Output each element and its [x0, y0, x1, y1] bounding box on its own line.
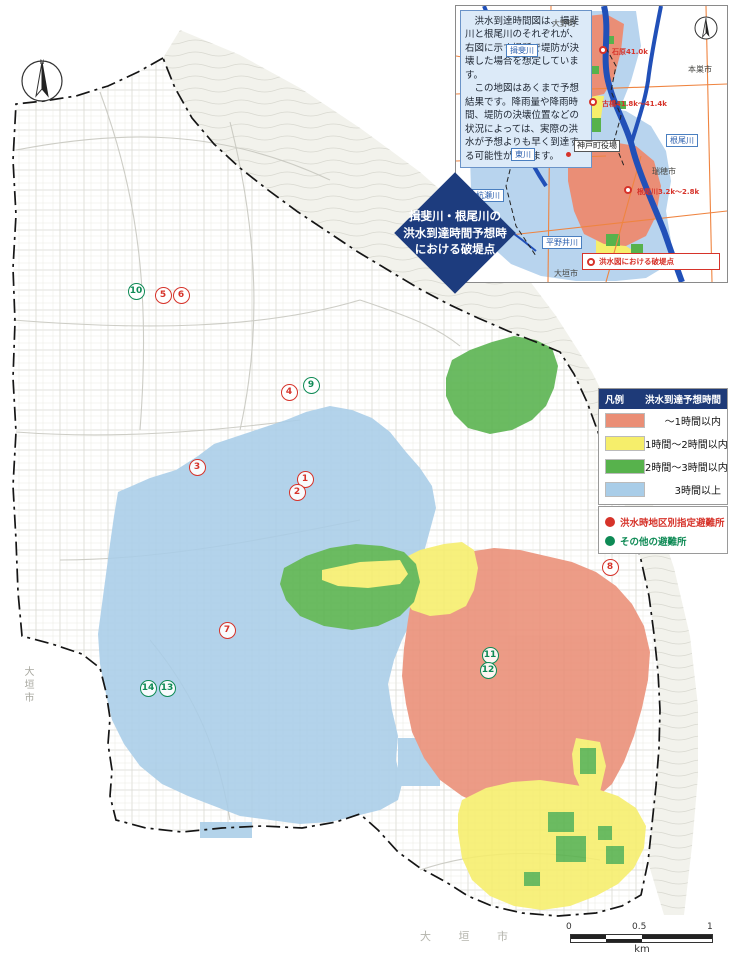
- shelter-legend-row-1: その他の避難所: [605, 531, 721, 550]
- city-label-ogaki-left: 大垣市: [20, 666, 35, 705]
- inset-label-river: 東川: [511, 148, 535, 161]
- inset-compass-icon: [695, 17, 717, 39]
- inset-label-office: 神戸町役場: [574, 140, 620, 152]
- shelter-marker-4: 4: [281, 384, 298, 401]
- breach-point-callout: 揖斐川・根尾川の 洪水到達時間予想時 における破堤点: [394, 174, 516, 292]
- shelter-legend-row-0: 洪水時地区別指定避難所: [605, 512, 721, 531]
- inset-label-plain: 大野町: [552, 18, 576, 29]
- shelter-dot-icon: [605, 517, 615, 527]
- svg-text:N: N: [40, 59, 45, 66]
- shelter-marker-11: 11: [482, 647, 499, 664]
- legend-label: 1時間～2時間以内: [645, 436, 728, 451]
- breach-point-marker-0: [599, 46, 607, 54]
- flood-zone-3h-patch: [580, 748, 596, 774]
- scale-bar-graphic: [570, 934, 713, 943]
- breach-point-marker-2: [624, 186, 632, 194]
- shelter-legend-label: 洪水時地区別指定避難所: [620, 515, 725, 529]
- legend-row-2: 2時間～3時間以内: [599, 455, 727, 478]
- legend-swatch: [605, 482, 645, 497]
- shelter-dot-icon: [605, 536, 615, 546]
- scale-tick-05: 0.5: [632, 922, 646, 932]
- legend-title: 凡例: [605, 392, 624, 406]
- compass-icon: N: [22, 59, 62, 101]
- callout-line3: における破堤点: [415, 241, 496, 258]
- shelter-marker-7: 7: [219, 622, 236, 639]
- breach-point-marker-1: [589, 98, 597, 106]
- legend-swatch: [605, 413, 645, 428]
- legend-row-0: ～1時間以内: [599, 409, 727, 432]
- flood-zone-3h-patch: [524, 872, 540, 886]
- breach-point-icon: [587, 258, 595, 266]
- breach-point-label-2: 根尾川3.2k〜2.8k: [637, 187, 699, 197]
- breach-point-label-0: 石原41.0k: [612, 47, 648, 57]
- shelter-marker-2: 2: [289, 484, 306, 501]
- inset-label-plain: 瑞穂市: [652, 166, 676, 177]
- legend-label: ～1時間以内: [645, 413, 721, 428]
- callout-line2: 洪水到達時間予想時: [403, 225, 507, 242]
- shelter-marker-8: 8: [602, 559, 619, 576]
- inset-label-river: 平野井川: [542, 236, 582, 249]
- flood-zone-3h-patch: [606, 846, 624, 864]
- city-label-ogaki-bottom: 大 垣 市: [420, 928, 520, 944]
- legend-row-1: 1時間～2時間以内: [599, 432, 727, 455]
- scale-unit: km: [566, 944, 718, 955]
- inset-note: 洪水到達時間図は、揖斐川と根尾川のそれぞれが、右図に示す場所で堤防が決壊した場合…: [460, 10, 592, 168]
- inset-label-plain: 本巣市: [688, 64, 712, 75]
- legend-label: 2時間～3時間以内: [645, 459, 728, 474]
- flood-zone-3h-patch: [548, 812, 574, 832]
- breach-point-label-1: 古橋41.8k〜41.4k: [602, 99, 667, 109]
- scale-tick-0: 0: [566, 922, 572, 932]
- inset-breach-legend-label: 洪水図における破堤点: [599, 256, 674, 267]
- shelter-marker-13: 13: [159, 680, 176, 697]
- inset-label-river: 揖斐川: [506, 44, 538, 57]
- shelter-marker-14: 14: [140, 680, 157, 697]
- inset-label-plain: 大垣市: [554, 268, 578, 279]
- flood-zone-3h-patch: [556, 836, 586, 862]
- scale-bar: 0 0.5 1 km: [566, 922, 718, 955]
- legend-swatch: [605, 459, 645, 474]
- inset-label-river: 根尾川: [666, 134, 698, 147]
- shelter-marker-5: 5: [155, 287, 172, 304]
- shelter-marker-10: 10: [128, 283, 145, 300]
- flood-zone-over3h-patch: [200, 822, 252, 838]
- legend: 凡例 洪水到達予想時間 ～1時間以内1時間～2時間以内2時間～3時間以内3時間以…: [598, 388, 728, 505]
- flood-zone-3h-patch: [598, 826, 612, 840]
- legend-row-3: 3時間以上: [599, 478, 727, 501]
- inset-breach-legend: 洪水図における破堤点: [582, 253, 720, 270]
- shelter-marker-6: 6: [173, 287, 190, 304]
- town-office-dot: [566, 152, 571, 157]
- legend-subtitle: 洪水到達予想時間: [645, 392, 721, 406]
- shelter-marker-12: 12: [480, 662, 497, 679]
- shelter-legend: 洪水時地区別指定避難所その他の避難所: [598, 506, 728, 554]
- shelter-marker-9: 9: [303, 377, 320, 394]
- legend-swatch: [605, 436, 645, 451]
- shelter-marker-3: 3: [189, 459, 206, 476]
- legend-label: 3時間以上: [645, 482, 721, 497]
- scale-tick-1: 1: [707, 922, 713, 932]
- callout-line1: 揖斐川・根尾川の: [409, 208, 501, 225]
- shelter-legend-label: その他の避難所: [620, 534, 687, 548]
- flood-arrival-time-map: N 大垣市 大 垣 市 1056943128711121413: [0, 0, 730, 966]
